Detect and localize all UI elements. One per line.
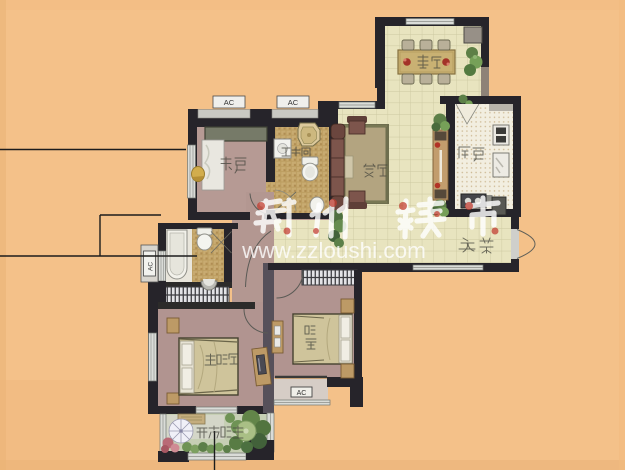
svg-text:AC: AC <box>224 98 235 107</box>
svg-text:www.zzloushi.com: www.zzloushi.com <box>241 238 426 263</box>
svg-text:AC: AC <box>288 98 299 107</box>
svg-text:AC: AC <box>297 390 307 397</box>
svg-text:AC: AC <box>148 262 155 271</box>
